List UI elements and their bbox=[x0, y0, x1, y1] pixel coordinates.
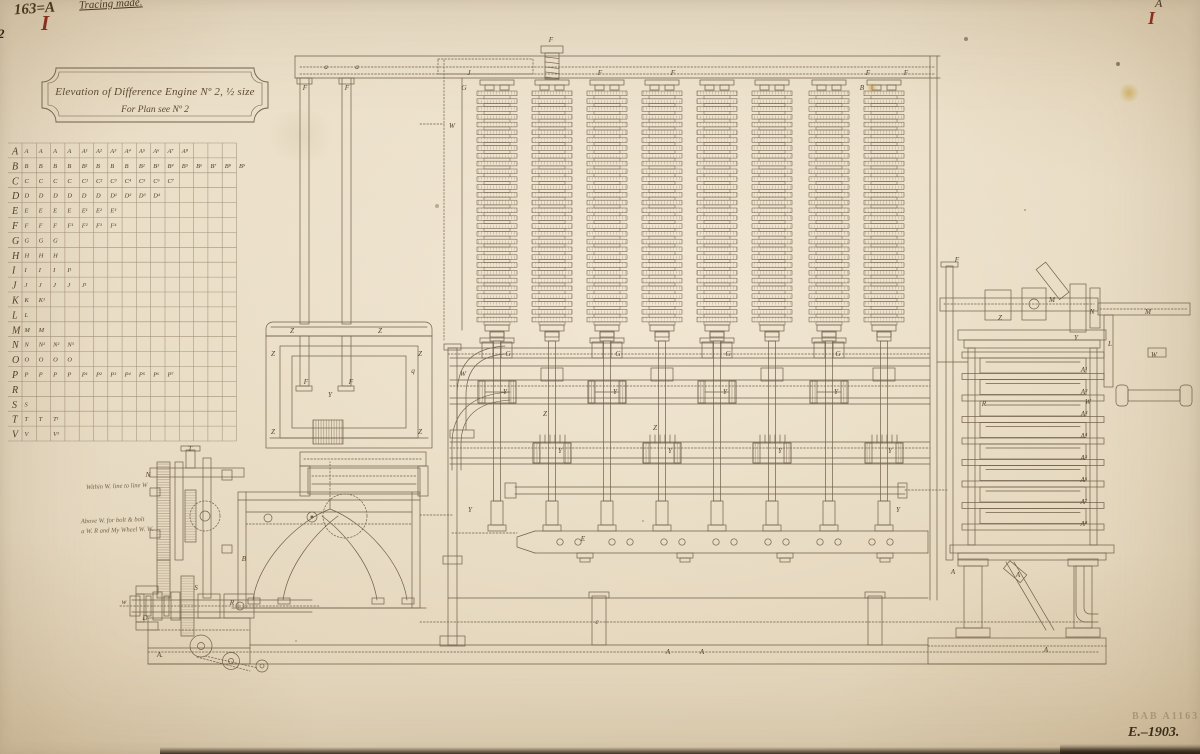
svg-text:E²: E² bbox=[95, 208, 102, 215]
svg-text:A: A bbox=[52, 148, 57, 155]
svg-text:F⁴: F⁴ bbox=[109, 223, 117, 230]
svg-text:P³: P³ bbox=[109, 372, 116, 379]
svg-text:A⁴: A⁴ bbox=[1080, 432, 1088, 440]
svg-text:A²: A² bbox=[1080, 388, 1088, 396]
svg-text:F: F bbox=[548, 36, 554, 44]
svg-text:Z: Z bbox=[271, 428, 276, 436]
svg-text:A¹: A¹ bbox=[1080, 366, 1088, 374]
svg-text:A: A bbox=[1015, 571, 1021, 579]
svg-text:T: T bbox=[25, 416, 29, 423]
svg-text:P: P bbox=[11, 370, 18, 381]
svg-text:B²: B² bbox=[139, 163, 145, 170]
svg-text:A³: A³ bbox=[1080, 410, 1088, 418]
svg-text:c: c bbox=[595, 618, 599, 626]
svg-text:B⁶: B⁶ bbox=[196, 163, 202, 170]
svg-text:B⁹: B⁹ bbox=[239, 163, 246, 170]
svg-text:N: N bbox=[24, 342, 30, 349]
svg-text:G: G bbox=[615, 350, 621, 358]
svg-text:E: E bbox=[24, 208, 29, 215]
cartouche-subtitle: For Plan see Nº 2 bbox=[120, 105, 189, 115]
svg-text:B: B bbox=[96, 163, 100, 170]
svg-text:R: R bbox=[229, 599, 235, 607]
svg-text:G: G bbox=[505, 350, 511, 358]
svg-text:M: M bbox=[24, 327, 31, 334]
svg-text:P²: P² bbox=[95, 372, 102, 379]
svg-text:B: B bbox=[110, 163, 114, 170]
svg-text:P⁶: P⁶ bbox=[152, 372, 159, 379]
svg-text:D: D bbox=[11, 191, 20, 202]
svg-text:B: B bbox=[67, 163, 71, 170]
svg-text:S: S bbox=[25, 401, 29, 408]
svg-text:A⁷: A⁷ bbox=[1080, 498, 1088, 506]
svg-text:M: M bbox=[1144, 308, 1152, 316]
svg-text:F: F bbox=[11, 221, 19, 232]
svg-text:C: C bbox=[53, 178, 58, 185]
svg-text:J: J bbox=[53, 282, 57, 289]
parts-reference-table: AAAAAA¹A²A³A⁴A⁵A⁶A⁷A⁸BBBBBB¹BBBB²B³B⁴B⁵B… bbox=[8, 143, 246, 441]
svg-text:B³: B³ bbox=[153, 163, 159, 170]
svg-text:A⁴: A⁴ bbox=[124, 148, 132, 155]
svg-text:Y: Y bbox=[468, 506, 473, 514]
svg-text:H: H bbox=[38, 252, 44, 259]
svg-text:D⁴: D⁴ bbox=[152, 193, 161, 200]
svg-text:W: W bbox=[1151, 351, 1158, 359]
svg-text:G: G bbox=[53, 237, 58, 244]
svg-text:A⁶: A⁶ bbox=[152, 148, 159, 155]
svg-text:F: F bbox=[24, 223, 29, 230]
svg-text:E: E bbox=[38, 208, 43, 215]
svg-text:A³: A³ bbox=[109, 148, 116, 155]
svg-text:V: V bbox=[25, 431, 30, 438]
svg-text:E: E bbox=[11, 206, 18, 217]
svg-text:G: G bbox=[39, 237, 44, 244]
svg-text:C: C bbox=[25, 178, 30, 185]
svg-text:O: O bbox=[25, 357, 30, 364]
svg-text:Z: Z bbox=[653, 424, 658, 432]
paper-bottom-edge-right bbox=[1060, 744, 1200, 754]
svg-text:B: B bbox=[39, 163, 43, 170]
svg-text:B: B bbox=[25, 163, 29, 170]
svg-text:N: N bbox=[11, 340, 20, 351]
svg-text:B¹: B¹ bbox=[82, 163, 88, 170]
svg-text:F: F bbox=[302, 84, 308, 92]
svg-text:N³: N³ bbox=[66, 342, 73, 349]
svg-text:Z: Z bbox=[998, 314, 1003, 322]
svg-text:F²: F² bbox=[81, 223, 88, 230]
svg-text:F: F bbox=[52, 223, 57, 230]
svg-text:C: C bbox=[67, 178, 72, 185]
svg-text:V¹: V¹ bbox=[53, 431, 59, 438]
svg-text:F: F bbox=[348, 378, 354, 386]
svg-text:D: D bbox=[52, 193, 58, 200]
svg-text:Z: Z bbox=[543, 410, 548, 418]
svg-text:W: W bbox=[460, 370, 467, 378]
svg-text:P: P bbox=[52, 372, 57, 379]
svg-text:Z: Z bbox=[418, 428, 423, 436]
svg-text:a: a bbox=[355, 63, 359, 71]
svg-text:F¹: F¹ bbox=[66, 223, 73, 230]
svg-text:B⁷: B⁷ bbox=[210, 163, 217, 170]
svg-text:P: P bbox=[24, 372, 29, 379]
svg-text:A⁷: A⁷ bbox=[167, 148, 175, 155]
svg-text:B: B bbox=[860, 84, 865, 92]
svg-text:Y: Y bbox=[328, 391, 333, 399]
svg-text:B: B bbox=[242, 555, 247, 563]
svg-text:q: q bbox=[411, 367, 415, 375]
svg-text:E³: E³ bbox=[109, 208, 116, 215]
scanned-drawing-sheet: 163=A Tracing made. I A I 2 Within W. li… bbox=[0, 0, 1200, 754]
svg-text:O: O bbox=[12, 355, 19, 366]
svg-text:A²: A² bbox=[95, 148, 102, 155]
svg-text:Y: Y bbox=[1074, 334, 1079, 342]
svg-text:E: E bbox=[52, 208, 57, 215]
svg-text:C⁴: C⁴ bbox=[125, 178, 132, 185]
svg-text:A⁵: A⁵ bbox=[1080, 454, 1088, 462]
svg-text:T¹: T¹ bbox=[53, 416, 59, 423]
svg-text:S: S bbox=[194, 584, 198, 592]
svg-text:C: C bbox=[39, 178, 44, 185]
svg-text:K: K bbox=[11, 296, 20, 307]
svg-text:B: B bbox=[53, 163, 57, 170]
svg-text:P⁷: P⁷ bbox=[167, 372, 175, 379]
svg-text:O: O bbox=[67, 357, 72, 364]
svg-text:N: N bbox=[145, 471, 152, 479]
drawing-svg: Elevation of Difference Engine Nº 2, ½ s… bbox=[0, 0, 1200, 754]
svg-text:D: D bbox=[81, 193, 87, 200]
svg-text:B⁸: B⁸ bbox=[225, 163, 232, 170]
svg-text:B⁴: B⁴ bbox=[168, 163, 175, 170]
svg-text:G: G bbox=[835, 350, 841, 358]
svg-text:A: A bbox=[24, 148, 29, 155]
svg-text:B: B bbox=[125, 163, 129, 170]
svg-text:w: w bbox=[122, 598, 127, 606]
svg-text:A: A bbox=[38, 148, 43, 155]
svg-text:P: P bbox=[38, 372, 43, 379]
svg-text:Z: Z bbox=[418, 350, 423, 358]
svg-text:H: H bbox=[52, 252, 58, 259]
svg-text:M: M bbox=[11, 325, 21, 336]
svg-text:D: D bbox=[66, 193, 72, 200]
svg-text:Y: Y bbox=[778, 447, 783, 455]
svg-text:J: J bbox=[25, 282, 29, 289]
svg-text:J: J bbox=[467, 69, 471, 77]
svg-text:C²: C² bbox=[96, 178, 102, 185]
svg-text:A⁸: A⁸ bbox=[181, 148, 189, 155]
svg-text:E: E bbox=[580, 535, 586, 543]
svg-text:F: F bbox=[303, 378, 309, 386]
svg-text:I: I bbox=[11, 266, 16, 277]
svg-text:a: a bbox=[324, 63, 328, 71]
svg-text:E: E bbox=[66, 208, 71, 215]
svg-text:R: R bbox=[981, 400, 987, 408]
svg-text:J¹: J¹ bbox=[82, 282, 87, 289]
svg-text:O: O bbox=[53, 357, 58, 364]
svg-text:K: K bbox=[24, 297, 30, 304]
svg-text:A.: A. bbox=[156, 651, 163, 659]
machine-elevation: aaFJFFFFFFGBWZZZZFFYZZqWYYYYYYYYGGGGZZEc… bbox=[120, 36, 1192, 672]
svg-text:S: S bbox=[12, 400, 17, 411]
svg-text:J: J bbox=[12, 281, 17, 292]
svg-text:B⁵: B⁵ bbox=[182, 163, 189, 170]
paper-specks bbox=[0, 0, 2, 2]
svg-text:E¹: E¹ bbox=[81, 208, 88, 215]
svg-text:I: I bbox=[24, 267, 28, 274]
svg-text:A⁵: A⁵ bbox=[138, 148, 146, 155]
svg-text:A¹: A¹ bbox=[81, 148, 88, 155]
svg-text:F: F bbox=[344, 84, 350, 92]
svg-text:D: D bbox=[24, 193, 30, 200]
svg-text:N²: N² bbox=[52, 342, 59, 349]
svg-text:T: T bbox=[39, 416, 43, 423]
svg-text:N¹: N¹ bbox=[38, 342, 45, 349]
svg-text:N: N bbox=[1089, 308, 1096, 316]
svg-text:I¹: I¹ bbox=[66, 267, 71, 274]
svg-text:O: O bbox=[39, 357, 44, 364]
svg-text:F: F bbox=[954, 256, 960, 264]
cartouche-title: Elevation of Difference Engine Nº 2, ½ s… bbox=[54, 86, 254, 98]
svg-text:C⁶: C⁶ bbox=[153, 178, 159, 185]
svg-text:K¹: K¹ bbox=[38, 297, 45, 304]
svg-text:D: D bbox=[38, 193, 44, 200]
title-cartouche: Elevation of Difference Engine Nº 2, ½ s… bbox=[42, 68, 268, 122]
svg-text:D: D bbox=[95, 193, 101, 200]
svg-text:A: A bbox=[950, 568, 956, 576]
svg-text:B: B bbox=[12, 161, 18, 172]
svg-text:P¹: P¹ bbox=[81, 372, 88, 379]
svg-text:F³: F³ bbox=[95, 223, 102, 230]
svg-text:C⁷: C⁷ bbox=[168, 178, 175, 185]
svg-text:I: I bbox=[38, 267, 42, 274]
svg-text:W: W bbox=[449, 122, 456, 130]
svg-text:A: A bbox=[66, 148, 71, 155]
svg-text:P⁵: P⁵ bbox=[138, 372, 146, 379]
svg-text:P: P bbox=[66, 372, 71, 379]
svg-text:A⁶: A⁶ bbox=[1080, 476, 1088, 484]
svg-text:D³: D³ bbox=[138, 193, 146, 200]
svg-text:F: F bbox=[670, 69, 676, 77]
svg-text:C³: C³ bbox=[110, 178, 116, 185]
svg-text:H: H bbox=[24, 252, 30, 259]
svg-text:C¹: C¹ bbox=[82, 178, 88, 185]
svg-text:Z: Z bbox=[271, 350, 276, 358]
svg-text:P⁴: P⁴ bbox=[124, 372, 132, 379]
svg-text:C⁵: C⁵ bbox=[139, 178, 146, 185]
svg-text:V: V bbox=[12, 430, 20, 441]
svg-text:J: J bbox=[39, 282, 43, 289]
svg-text:Z: Z bbox=[378, 327, 383, 335]
svg-text:J: J bbox=[67, 282, 71, 289]
svg-text:A: A bbox=[699, 648, 705, 656]
svg-text:R: R bbox=[11, 385, 18, 396]
svg-text:T: T bbox=[12, 415, 19, 426]
svg-text:A⁸: A⁸ bbox=[1080, 520, 1088, 528]
svg-text:M: M bbox=[38, 327, 45, 334]
svg-text:G: G bbox=[12, 236, 19, 247]
svg-text:D²: D² bbox=[124, 193, 132, 200]
svg-text:I: I bbox=[52, 267, 56, 274]
svg-text:G: G bbox=[25, 237, 30, 244]
svg-text:H: H bbox=[11, 251, 20, 262]
svg-text:L: L bbox=[1107, 340, 1112, 348]
svg-text:D¹: D¹ bbox=[109, 193, 117, 200]
svg-text:W: W bbox=[1085, 398, 1092, 406]
svg-text:F: F bbox=[597, 69, 603, 77]
svg-text:L: L bbox=[11, 310, 18, 321]
svg-text:M: M bbox=[1048, 296, 1056, 304]
svg-text:C: C bbox=[12, 176, 19, 187]
paper-bottom-edge bbox=[160, 747, 1200, 754]
svg-text:G: G bbox=[725, 350, 731, 358]
svg-text:F: F bbox=[38, 223, 43, 230]
svg-text:Z: Z bbox=[290, 327, 295, 335]
svg-text:L: L bbox=[24, 312, 29, 319]
svg-text:D: D bbox=[141, 614, 148, 622]
svg-text:F: F bbox=[903, 69, 909, 77]
svg-text:A: A bbox=[665, 648, 671, 656]
svg-text:A: A bbox=[11, 147, 19, 158]
svg-text:A: A bbox=[1043, 646, 1049, 654]
svg-text:Y: Y bbox=[896, 506, 901, 514]
svg-text:G: G bbox=[461, 84, 467, 92]
svg-text:F: F bbox=[865, 69, 871, 77]
